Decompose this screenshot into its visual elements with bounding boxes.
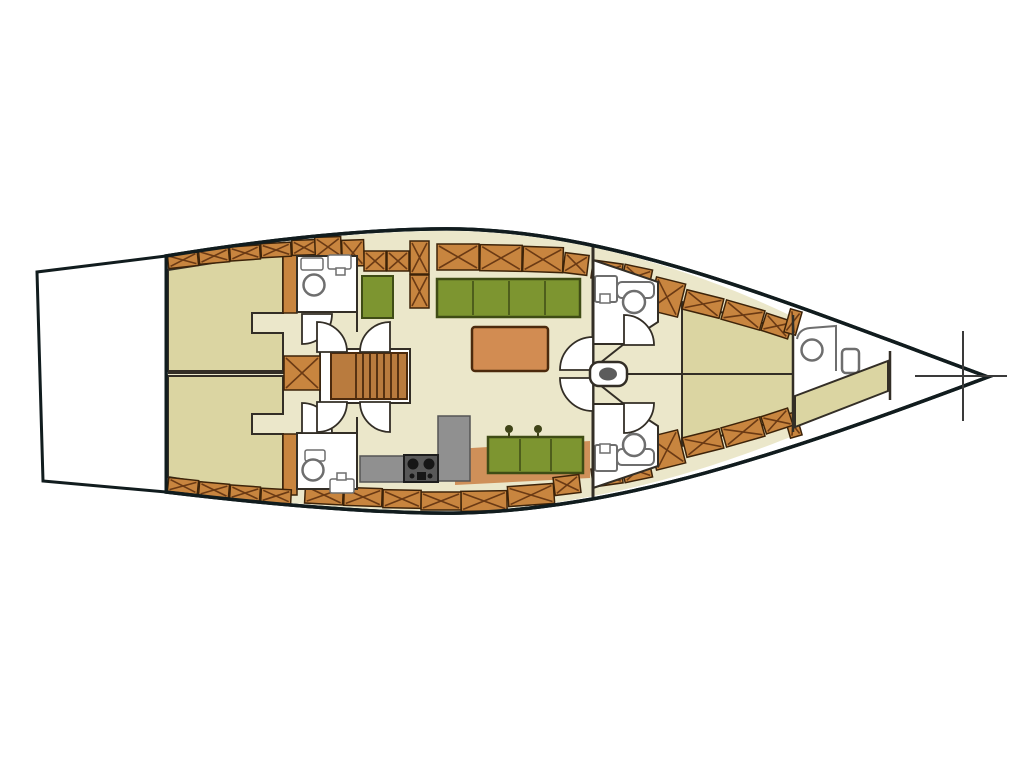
- salon-table: [472, 327, 548, 371]
- storage-locker: [563, 253, 589, 276]
- sink-tap: [336, 268, 345, 275]
- toilet-bowl: [304, 275, 325, 296]
- sink-tap: [600, 444, 610, 453]
- sink-basin: [842, 349, 859, 373]
- storage-locker: [292, 240, 317, 256]
- toilet-bowl: [623, 291, 645, 313]
- salon-settee-starboard: [488, 437, 583, 473]
- aft-starboard-berth: [168, 376, 283, 495]
- stove-knob: [410, 474, 415, 479]
- storage-locker: [480, 245, 522, 272]
- stove-oven-handle: [417, 472, 426, 480]
- toilet-cistern: [301, 258, 323, 270]
- wardrobe-starboard: [283, 434, 297, 495]
- sink-basin: [328, 255, 351, 269]
- transom-swim-platform: [37, 256, 166, 492]
- toilet-bowl: [623, 434, 645, 456]
- mast: [599, 368, 617, 381]
- storage-locker: [410, 241, 429, 274]
- stove-burner: [424, 459, 435, 470]
- storage-locker: [364, 251, 386, 271]
- yacht-deck-plan-page: [0, 0, 1013, 759]
- companionway-stairs: [331, 353, 407, 399]
- faucet-knob: [505, 425, 513, 433]
- toilet-bowl: [802, 340, 823, 361]
- storage-locker: [387, 251, 409, 271]
- sink-tap: [600, 294, 610, 303]
- stove-burner: [408, 459, 419, 470]
- aft-port-berth: [168, 252, 283, 371]
- storage-locker: [437, 244, 479, 270]
- storage-locker: [523, 246, 564, 272]
- toilet-bowl: [303, 460, 324, 481]
- stove-knob: [428, 474, 433, 479]
- storage-locker: [421, 492, 461, 510]
- nav-seat: [362, 276, 393, 318]
- storage-locker: [507, 483, 554, 506]
- galley-cabinet-column: [438, 416, 470, 481]
- storage-locker: [383, 490, 421, 509]
- engine-box: [284, 356, 320, 390]
- sink-basin: [330, 479, 354, 493]
- yacht-deck-plan: [0, 0, 1013, 759]
- faucet-knob: [534, 425, 542, 433]
- wardrobe-port: [283, 252, 297, 313]
- storage-locker: [553, 474, 581, 495]
- storage-locker: [461, 491, 507, 512]
- storage-locker: [410, 275, 429, 308]
- storage-locker: [261, 242, 292, 258]
- sink-tap: [337, 473, 346, 480]
